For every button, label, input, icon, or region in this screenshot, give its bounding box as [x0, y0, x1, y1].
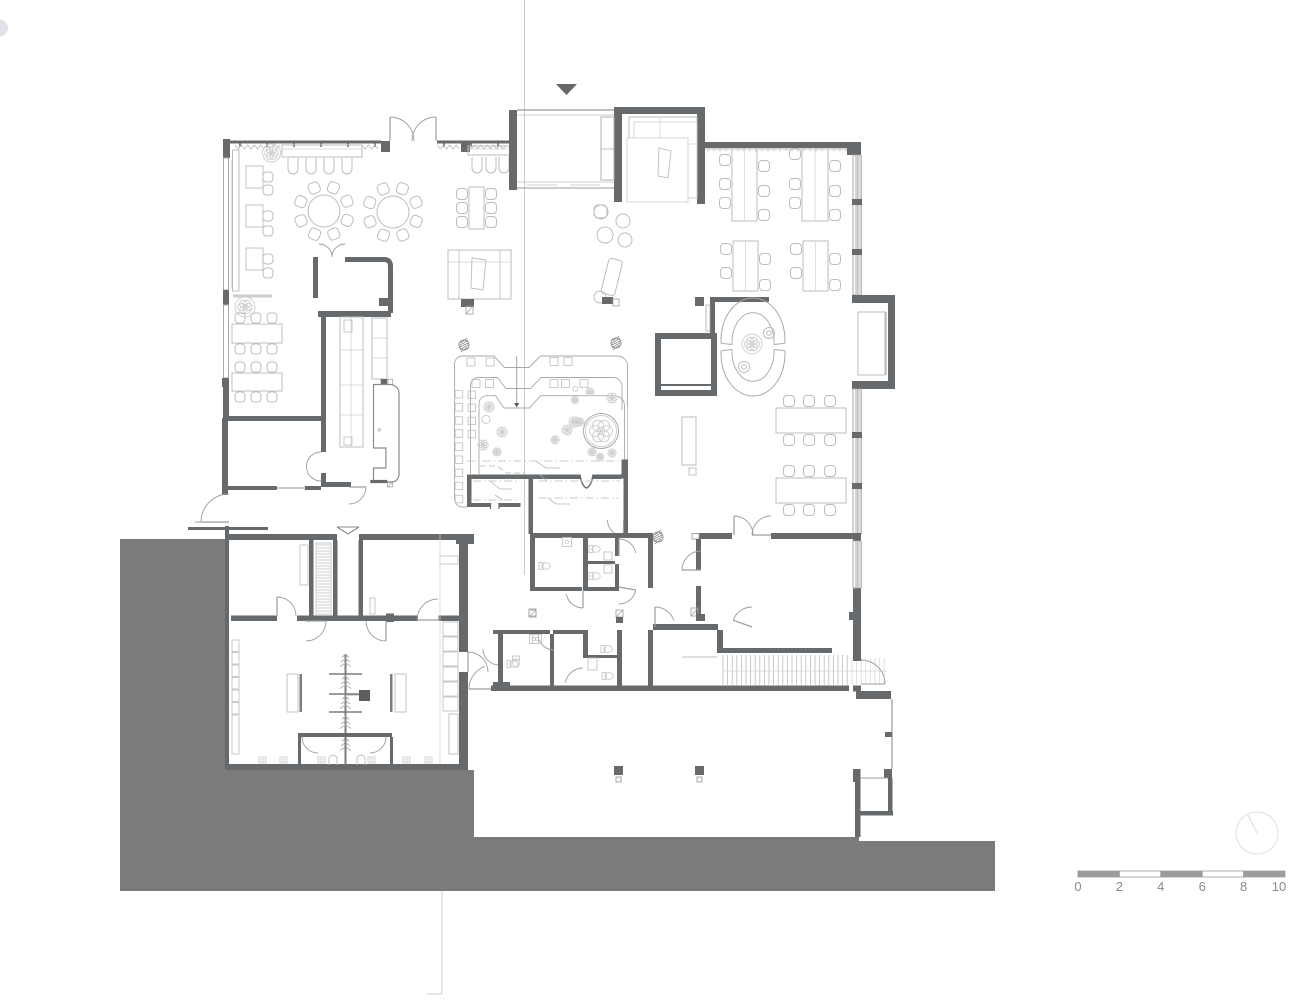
- svg-text:8: 8: [1240, 879, 1247, 894]
- svg-text:0: 0: [1074, 879, 1081, 894]
- svg-text:10: 10: [1272, 879, 1286, 894]
- svg-text:4: 4: [1157, 879, 1164, 894]
- svg-text:2: 2: [1116, 879, 1123, 894]
- svg-text:6: 6: [1199, 879, 1206, 894]
